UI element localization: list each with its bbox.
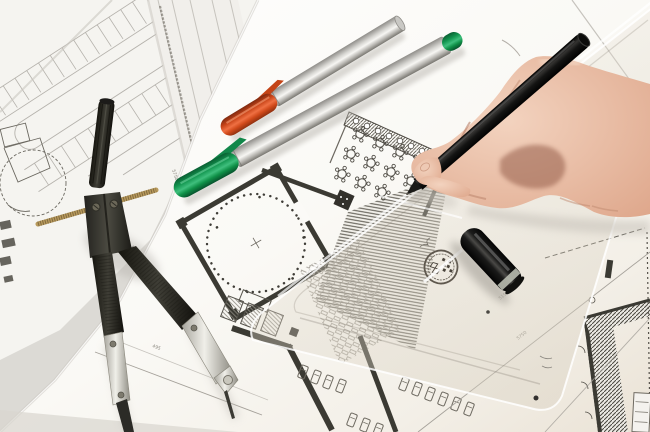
legend-box — [632, 393, 650, 432]
photo-architect-desk: Close-up photograph of a hand drawing on… — [0, 0, 650, 432]
ruler-dot — [534, 396, 539, 401]
photo-scene: 3512 5750 — [0, 0, 650, 432]
ruler-dot — [486, 310, 490, 314]
